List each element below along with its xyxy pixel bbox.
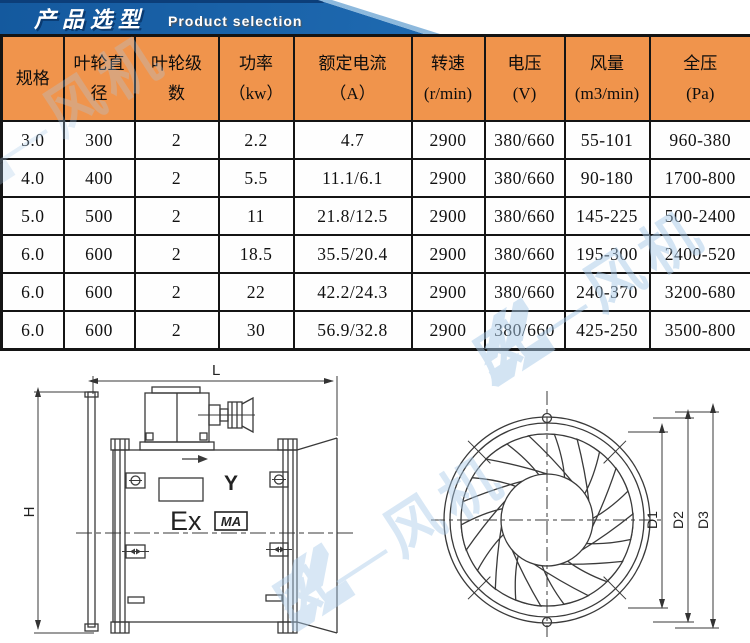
table-cell: 500 [64, 197, 135, 235]
table-cell: 600 [64, 235, 135, 273]
table-cell: 11 [219, 197, 294, 235]
column-header-speed: 转速 (r/min) [412, 36, 485, 122]
table-cell: 4.7 [294, 121, 412, 159]
table-cell: 400 [64, 159, 135, 197]
table-cell: 55-101 [565, 121, 650, 159]
table-cell: 2900 [412, 235, 485, 273]
column-header-total-pressure: 全压 (Pa) [650, 36, 750, 122]
table-cell: 90-180 [565, 159, 650, 197]
table-row: 6.0 600 2 30 56.9/32.8 2900 380/660 425-… [2, 311, 750, 350]
column-header-voltage: 电压 (V) [485, 36, 565, 122]
table-cell: 380/660 [485, 235, 565, 273]
table-cell: 2 [135, 235, 219, 273]
table-cell: 22 [219, 273, 294, 311]
column-header-rated-current: 额定电流 （A） [294, 36, 412, 122]
table-cell: 21.8/12.5 [294, 197, 412, 235]
column-header-impeller-stages: 叶轮级 数 [135, 36, 219, 122]
table-row: 6.0 600 2 18.5 35.5/20.4 2900 380/660 19… [2, 235, 750, 273]
table-cell: 2900 [412, 197, 485, 235]
fan-side-view-drawing: L H Y Ex MA [12, 352, 357, 640]
table-cell: 2 [135, 121, 219, 159]
table-cell: 380/660 [485, 197, 565, 235]
table-cell: 240-370 [565, 273, 650, 311]
table-row: 5.0 500 2 11 21.8/12.5 2900 380/660 145-… [2, 197, 750, 235]
table-cell: 600 [64, 273, 135, 311]
table-cell: 11.1/6.1 [294, 159, 412, 197]
winding-symbol-label: Y [224, 472, 238, 495]
table-cell: 2 [135, 311, 219, 350]
dimension-label-length: L [212, 362, 220, 379]
table-cell: 2900 [412, 159, 485, 197]
table-cell: 2 [135, 273, 219, 311]
page-title-chinese: 产品选型 [34, 2, 146, 34]
page: 产品选型 Product selection 规格 叶轮直 径 叶轮级 数 功率… [0, 0, 750, 643]
product-selection-table: 规格 叶轮直 径 叶轮级 数 功率 （kw） 额定电流 （A） 转速 (r/mi… [0, 34, 750, 351]
table-cell: 2400-520 [650, 235, 750, 273]
dimension-label-d1: D1 [644, 511, 660, 529]
table-cell: 2900 [412, 311, 485, 350]
table-cell: 6.0 [2, 235, 64, 273]
table-cell: 195-300 [565, 235, 650, 273]
table-cell: 3.0 [2, 121, 64, 159]
table-cell: 2900 [412, 121, 485, 159]
table-cell: 300 [64, 121, 135, 159]
table-cell: 425-250 [565, 311, 650, 350]
table-cell: 42.2/24.3 [294, 273, 412, 311]
table-cell: 6.0 [2, 273, 64, 311]
table-row: 6.0 600 2 22 42.2/24.3 2900 380/660 240-… [2, 273, 750, 311]
column-header-power: 功率 （kw） [219, 36, 294, 122]
table-row: 3.0 300 2 2.2 4.7 2900 380/660 55-101 96… [2, 121, 750, 159]
table-cell: 2 [135, 159, 219, 197]
side-view-geometry [34, 376, 356, 633]
table-header-row: 规格 叶轮直 径 叶轮级 数 功率 （kw） 额定电流 （A） 转速 (r/mi… [2, 36, 750, 122]
table-cell: 18.5 [219, 235, 294, 273]
page-title-english: Product selection [168, 13, 302, 29]
table-row: 4.0 400 2 5.5 11.1/6.1 2900 380/660 90-1… [2, 159, 750, 197]
table-cell: 2 [135, 197, 219, 235]
table-cell: 600 [64, 311, 135, 350]
dimension-label-d3: D3 [695, 511, 711, 529]
column-header-impeller-diameter: 叶轮直 径 [64, 36, 135, 122]
table-cell: 35.5/20.4 [294, 235, 412, 273]
banner: 产品选型 Product selection [0, 0, 750, 34]
fan-front-view-drawing: D1 D2 D3 [413, 383, 750, 643]
table-cell: 380/660 [485, 121, 565, 159]
table-cell: 5.5 [219, 159, 294, 197]
table-cell: 380/660 [485, 311, 565, 350]
table-cell: 380/660 [485, 159, 565, 197]
ma-marking-label: MA [221, 514, 241, 529]
table-cell: 145-225 [565, 197, 650, 235]
table-cell: 380/660 [485, 273, 565, 311]
table-cell: 960-380 [650, 121, 750, 159]
table-cell: 2.2 [219, 121, 294, 159]
table-cell: 4.0 [2, 159, 64, 197]
table-cell: 3200-680 [650, 273, 750, 311]
table-cell: 500-2400 [650, 197, 750, 235]
table-cell: 6.0 [2, 311, 64, 350]
table-cell: 5.0 [2, 197, 64, 235]
dimension-label-height: H [21, 507, 38, 518]
column-header-spec: 规格 [2, 36, 64, 122]
table-cell: 1700-800 [650, 159, 750, 197]
table-cell: 2900 [412, 273, 485, 311]
table-cell: 3500-800 [650, 311, 750, 350]
table-cell: 56.9/32.8 [294, 311, 412, 350]
ex-marking-label: Ex [170, 506, 202, 536]
column-header-air-volume: 风量 (m3/min) [565, 36, 650, 122]
dimension-label-d2: D2 [670, 511, 686, 529]
table-cell: 30 [219, 311, 294, 350]
